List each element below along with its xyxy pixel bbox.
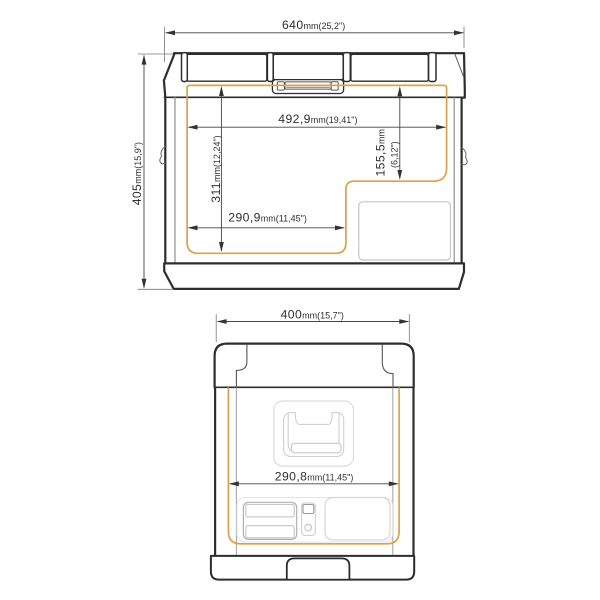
svg-text:155,5mm: 155,5mm — [373, 129, 387, 177]
svg-text:290,9mm(11,45"): 290,9mm(11,45") — [228, 211, 307, 225]
svg-text:290,8mm(11,45"): 290,8mm(11,45") — [275, 469, 354, 483]
svg-text:640mm(25,2"): 640mm(25,2") — [282, 18, 345, 32]
svg-text:311mm(12,24"): 311mm(12,24") — [209, 135, 223, 202]
svg-text:400mm(15,7"): 400mm(15,7") — [281, 308, 344, 322]
svg-text:405mm(15,9"): 405mm(15,9") — [130, 142, 144, 205]
svg-text:(6,12"): (6,12") — [390, 141, 400, 168]
svg-text:492,9mm(19,41"): 492,9mm(19,41") — [278, 112, 357, 126]
